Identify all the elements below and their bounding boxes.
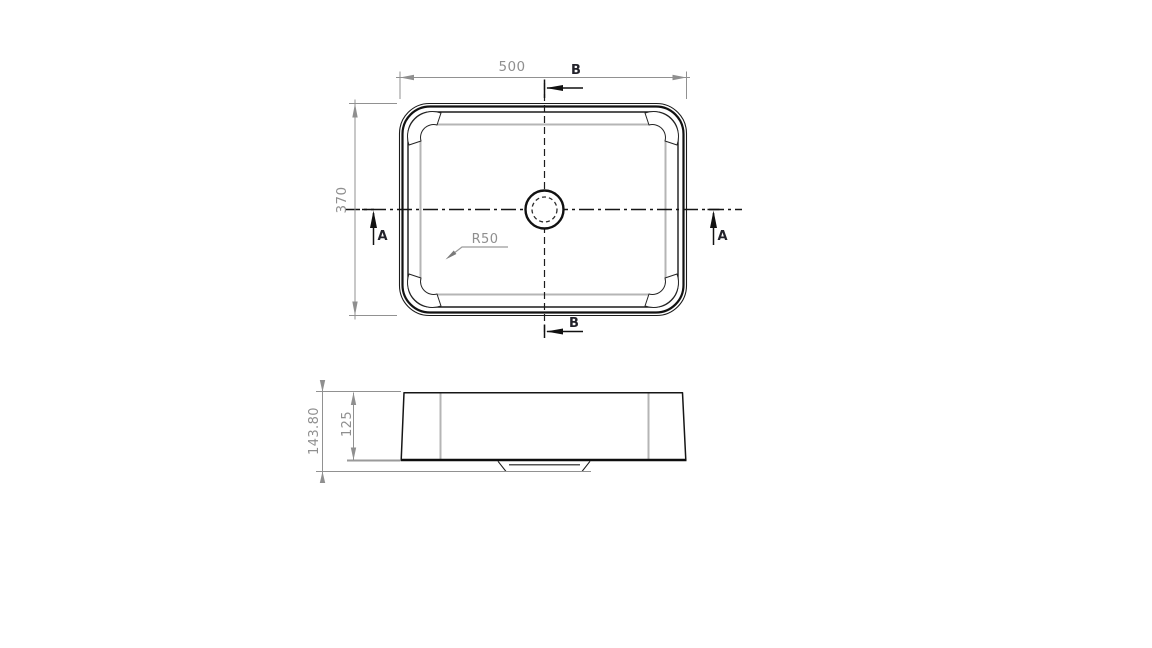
corner-fillet-top-left bbox=[408, 112, 441, 145]
radius-callout: R50 bbox=[446, 232, 509, 260]
radius-leader-line bbox=[449, 247, 508, 257]
section-marker-b-bottom: B bbox=[545, 316, 584, 338]
dim-arrow-bottom bbox=[351, 448, 356, 461]
section-arrowhead bbox=[546, 85, 563, 91]
dim-width-value: 500 bbox=[499, 59, 526, 75]
radius-callout-value: R50 bbox=[472, 232, 499, 247]
drain-boss-outline bbox=[498, 461, 590, 471]
dim-arrow-top bbox=[352, 104, 357, 118]
dim-arrow-bottom bbox=[352, 302, 357, 316]
section-arrowhead bbox=[546, 329, 563, 335]
dim-body-height-value: 125 bbox=[340, 411, 355, 437]
dimension-width: 500 bbox=[396, 59, 690, 99]
radius-leader-arrow bbox=[446, 251, 457, 260]
top-view bbox=[345, 83, 742, 336]
dim-overall-height-value: 143.80 bbox=[307, 407, 322, 455]
dim-arrow-left bbox=[400, 75, 414, 80]
dim-arrow-top bbox=[351, 393, 356, 406]
dim-arrow-bottom bbox=[320, 472, 325, 484]
section-arrowhead bbox=[370, 211, 377, 229]
dim-arrow-top bbox=[320, 380, 325, 392]
corner-fillet-bottom-left bbox=[408, 274, 441, 307]
technical-drawing-canvas: 500 370 R50 A A B B bbox=[0, 0, 1152, 648]
section-marker-a-right: A bbox=[708, 210, 728, 246]
corner-fillet-top-right bbox=[645, 112, 678, 145]
drawing-sheet: 500 370 R50 A A B B bbox=[0, 0, 1152, 648]
dimension-body-height: 125 bbox=[340, 393, 400, 461]
basin-profile-outline bbox=[401, 393, 686, 460]
section-marker-a-left: A bbox=[362, 210, 388, 246]
side-view bbox=[401, 393, 687, 472]
section-label-b: B bbox=[569, 316, 579, 331]
section-marker-b-top: B bbox=[545, 63, 584, 98]
section-label-a: A bbox=[718, 229, 728, 244]
dim-arrow-right bbox=[673, 75, 687, 80]
section-label-a: A bbox=[378, 229, 388, 244]
section-label-b: B bbox=[571, 63, 581, 78]
dim-depth-value: 370 bbox=[334, 187, 350, 214]
drain-outer-circle bbox=[526, 191, 564, 229]
corner-fillet-bottom-right bbox=[645, 274, 678, 307]
section-arrowhead bbox=[710, 211, 717, 229]
